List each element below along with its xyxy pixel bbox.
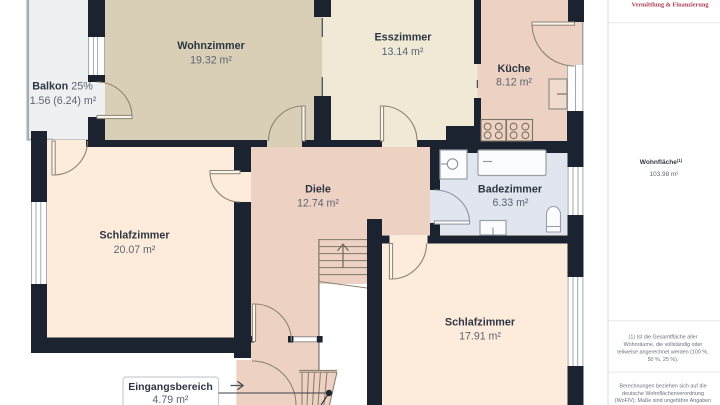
svg-text:20.07 m²: 20.07 m²	[114, 244, 156, 256]
svg-text:17.91 m²: 17.91 m²	[459, 331, 501, 343]
svg-text:103.98 m²: 103.98 m²	[650, 171, 679, 178]
svg-text:(1) Ist die Gesamtfläche aller: (1) Ist die Gesamtfläche aller	[629, 335, 698, 341]
svg-text:8.12 m²: 8.12 m²	[496, 77, 532, 89]
svg-text:(WoFlV); Maße sind ungefähre A: (WoFlV); Maße sind ungefähre Angaben	[615, 398, 711, 404]
svg-text:Esszimmer: Esszimmer	[374, 32, 432, 44]
svg-text:Küche: Küche	[498, 63, 531, 75]
svg-text:Wohnräume, die vollständig ode: Wohnräume, die vollständig oder	[624, 342, 703, 348]
svg-text:Schlafzimmer: Schlafzimmer	[99, 230, 170, 242]
svg-text:1.56 (6.24) m²: 1.56 (6.24) m²	[30, 95, 97, 107]
svg-text:Balkon 25%: Balkon 25%	[32, 80, 93, 92]
svg-text:4.79 m²: 4.79 m²	[153, 394, 189, 405]
svg-text:Wohnzimmer: Wohnzimmer	[177, 40, 245, 52]
svg-text:Berechnungen beziehen sich auf: Berechnungen beziehen sich auf die	[619, 384, 706, 390]
svg-text:Eingangsbereich: Eingangsbereich	[128, 381, 213, 393]
svg-text:Vermittlung & Finanzierung: Vermittlung & Finanzierung	[632, 2, 710, 9]
svg-text:teilweise angerechnet werden (: teilweise angerechnet werden (100 %,	[617, 350, 709, 356]
svg-text:Schlafzimmer: Schlafzimmer	[445, 317, 516, 329]
svg-text:6.33 m²: 6.33 m²	[493, 197, 529, 209]
svg-text:Wohnfläche(1): Wohnfläche(1)	[640, 158, 683, 166]
svg-text:50 %, 25 %).: 50 %, 25 %).	[648, 357, 679, 363]
svg-text:13.14 m²: 13.14 m²	[382, 46, 424, 58]
svg-text:Diele: Diele	[305, 184, 331, 196]
svg-text:12.74 m²: 12.74 m²	[297, 198, 339, 210]
svg-text:19.32 m²: 19.32 m²	[190, 55, 232, 67]
svg-text:deutsche Wohnflächenverordnung: deutsche Wohnflächenverordnung	[622, 391, 704, 397]
svg-text:Badezimmer: Badezimmer	[478, 183, 543, 195]
